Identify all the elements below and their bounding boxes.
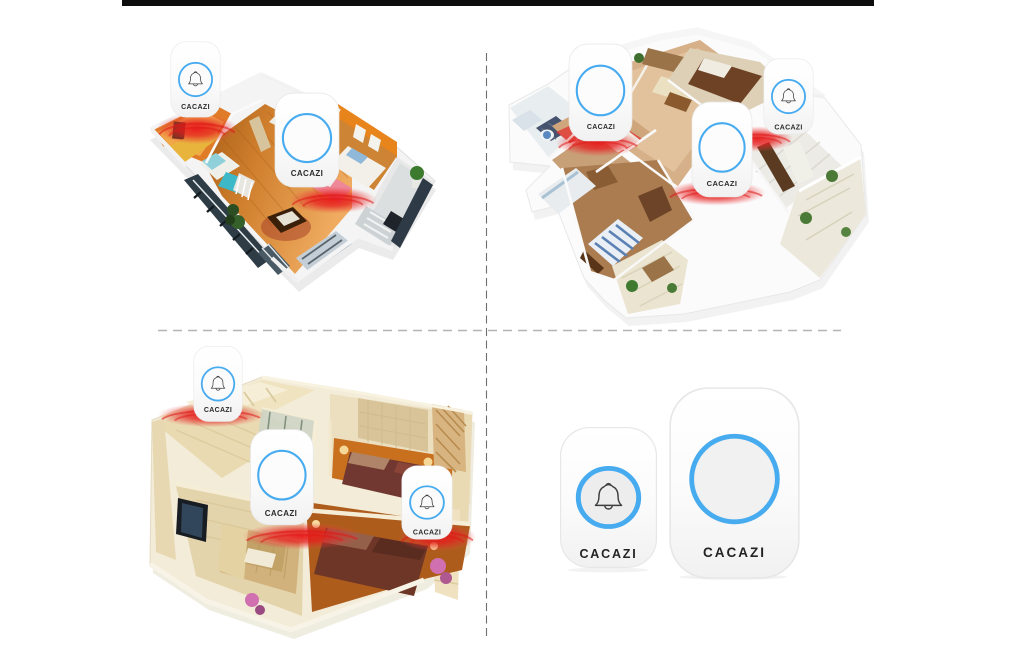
svg-text:CACAZI: CACAZI — [291, 169, 324, 178]
svg-text:CACAZI: CACAZI — [181, 104, 210, 111]
svg-text:CACAZI: CACAZI — [587, 124, 615, 131]
svg-text:CACAZI: CACAZI — [703, 545, 766, 560]
svg-text:CACAZI: CACAZI — [579, 547, 637, 561]
svg-text:CACAZI: CACAZI — [265, 509, 298, 518]
svg-text:CACAZI: CACAZI — [413, 530, 441, 537]
svg-text:CACAZI: CACAZI — [774, 125, 802, 132]
svg-text:CACAZI: CACAZI — [707, 179, 738, 188]
svg-text:CACAZI: CACAZI — [204, 407, 232, 414]
